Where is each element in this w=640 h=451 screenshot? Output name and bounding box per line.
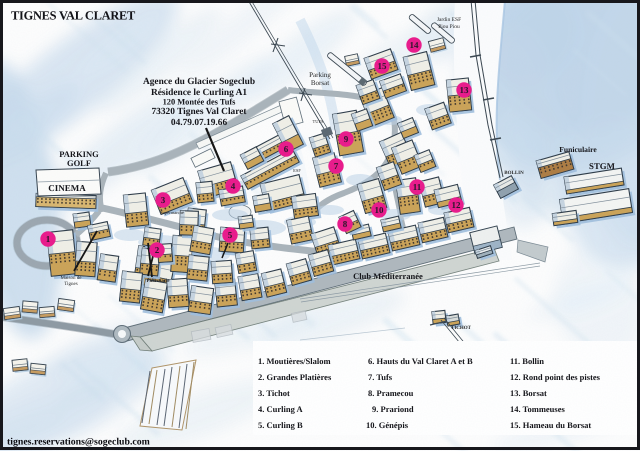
svg-text:tignes.reservations@sogeclub.c: tignes.reservations@sogeclub.com: [7, 437, 150, 448]
